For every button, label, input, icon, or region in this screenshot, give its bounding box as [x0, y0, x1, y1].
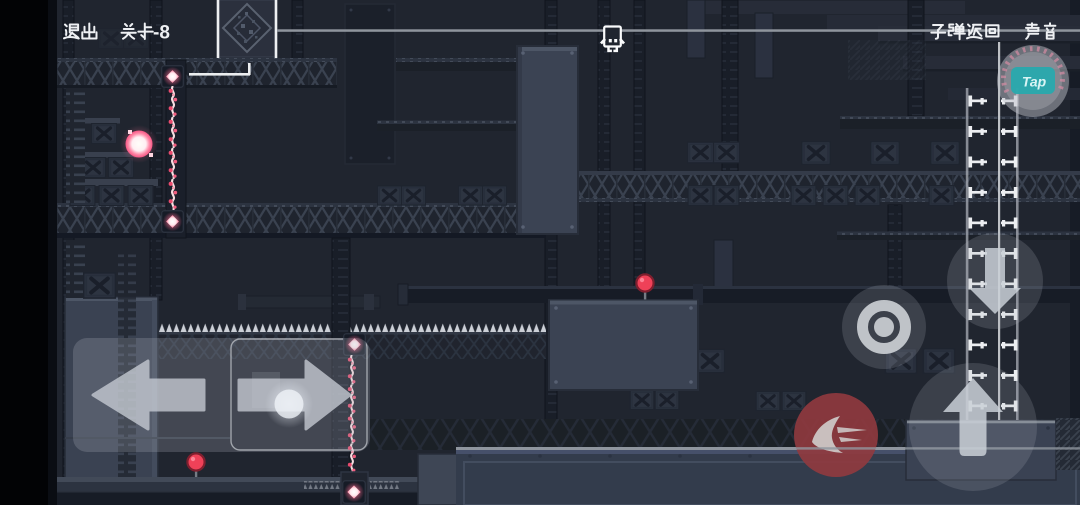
svg-text:-8: -8	[153, 23, 170, 44]
svg-text:Tap: Tap	[1022, 74, 1047, 90]
